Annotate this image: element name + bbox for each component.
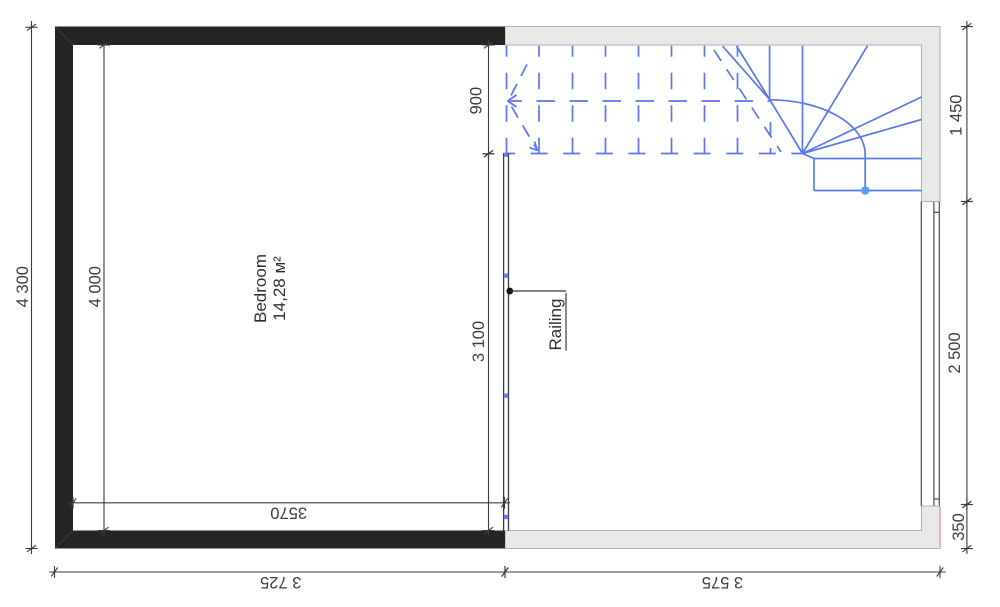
svg-text:3 100: 3 100 [470,321,488,362]
svg-text:2 500: 2 500 [946,332,964,373]
svg-text:900: 900 [467,87,485,115]
svg-text:Railing: Railing [546,299,565,351]
svg-text:14,28 м²: 14,28 м² [270,256,289,321]
svg-text:3 575: 3 575 [702,573,743,591]
svg-text:3 725: 3 725 [260,573,301,591]
svg-text:4 000: 4 000 [87,266,105,307]
svg-text:4 300: 4 300 [14,266,32,307]
svg-text:3570: 3570 [270,503,307,521]
svg-text:350: 350 [950,513,968,541]
svg-text:1 450: 1 450 [948,95,966,136]
svg-text:Bedroom: Bedroom [251,254,270,323]
